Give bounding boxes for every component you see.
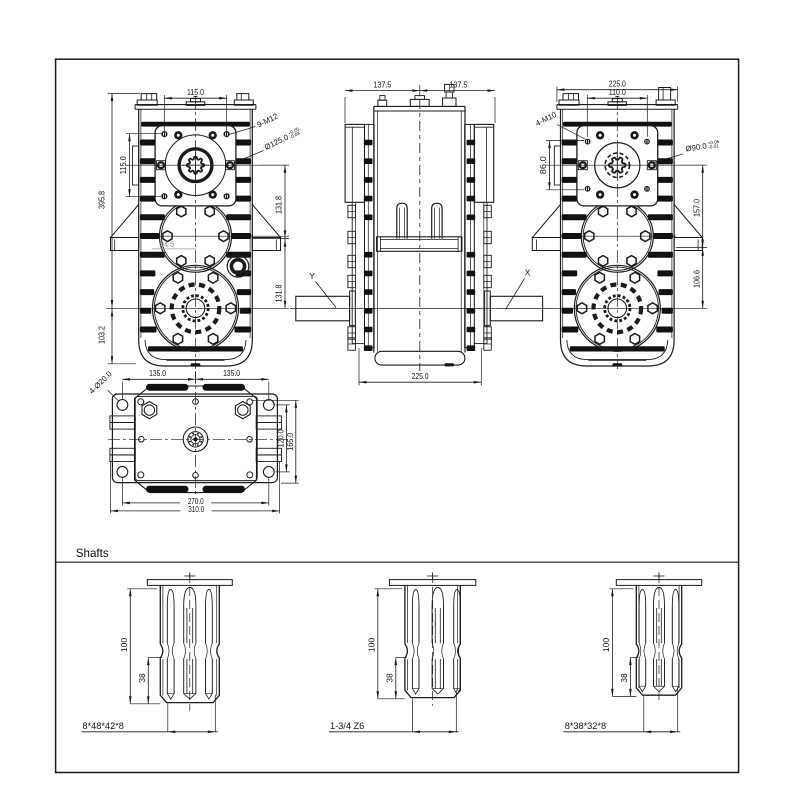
svg-text:157.0: 157.0 — [691, 199, 701, 217]
svg-text:38: 38 — [619, 673, 629, 683]
svg-text:103.2: 103.2 — [96, 326, 106, 344]
svg-text:135.0: 135.0 — [149, 368, 166, 378]
svg-text:131.8: 131.8 — [274, 196, 284, 214]
svg-text:137.5: 137.5 — [449, 79, 467, 89]
svg-text:110.0: 110.0 — [609, 87, 626, 97]
svg-text:115.0: 115.0 — [118, 156, 128, 174]
svg-text:115.0: 115.0 — [187, 87, 204, 97]
svg-text:137.5: 137.5 — [373, 79, 391, 89]
svg-text:X: X — [525, 268, 531, 278]
svg-text:38: 38 — [137, 673, 147, 683]
svg-text:38: 38 — [385, 673, 395, 683]
svg-text:1-3/4 Z6: 1-3/4 Z6 — [330, 721, 364, 731]
svg-text:94.5: 94.5 — [160, 240, 175, 249]
svg-text:8*38*32*8: 8*38*32*8 — [565, 721, 606, 731]
svg-text:106.6: 106.6 — [691, 270, 701, 288]
svg-text:8*48*42*8: 8*48*42*8 — [83, 721, 124, 731]
svg-text:100: 100 — [367, 638, 377, 653]
svg-text:100: 100 — [601, 638, 611, 653]
svg-text:310.0: 310.0 — [188, 504, 204, 514]
svg-text:135.0: 135.0 — [223, 368, 240, 378]
svg-text:165.0: 165.0 — [285, 432, 295, 450]
svg-text:225.0: 225.0 — [412, 371, 429, 381]
svg-text:395.8: 395.8 — [96, 191, 106, 209]
svg-text:131.8: 131.8 — [274, 284, 284, 302]
svg-text:Y: Y — [309, 271, 315, 281]
svg-text:Shafts: Shafts — [76, 547, 109, 560]
svg-text:100: 100 — [119, 638, 129, 653]
svg-text:86.0: 86.0 — [538, 156, 548, 174]
